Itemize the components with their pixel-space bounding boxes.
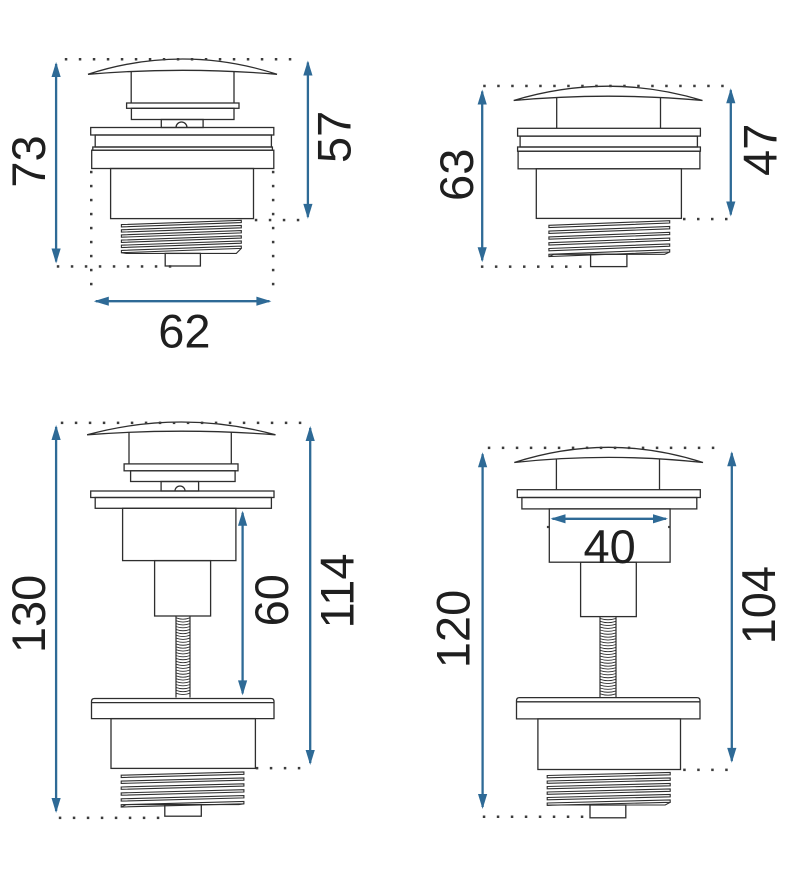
svg-text:73: 73	[2, 135, 55, 187]
svg-text:130: 130	[2, 575, 55, 653]
svg-text:120: 120	[426, 590, 479, 668]
svg-text:40: 40	[584, 520, 636, 573]
svg-text:114: 114	[310, 554, 363, 629]
svg-text:62: 62	[158, 304, 210, 357]
svg-text:47: 47	[733, 124, 786, 176]
svg-text:57: 57	[307, 111, 360, 163]
svg-text:60: 60	[245, 574, 298, 626]
svg-text:104: 104	[732, 566, 785, 644]
svg-text:63: 63	[430, 149, 483, 201]
